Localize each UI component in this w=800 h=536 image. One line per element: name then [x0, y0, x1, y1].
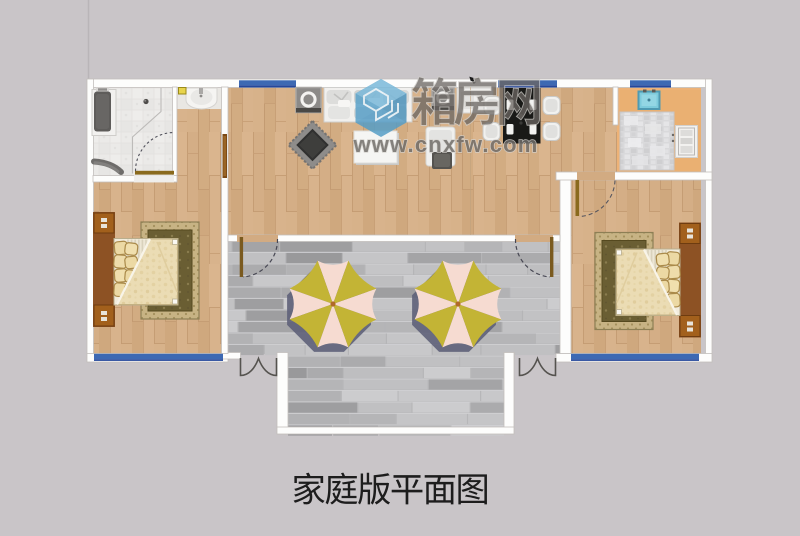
svg-text:www.cnxfw.com: www.cnxfw.com	[352, 132, 538, 157]
